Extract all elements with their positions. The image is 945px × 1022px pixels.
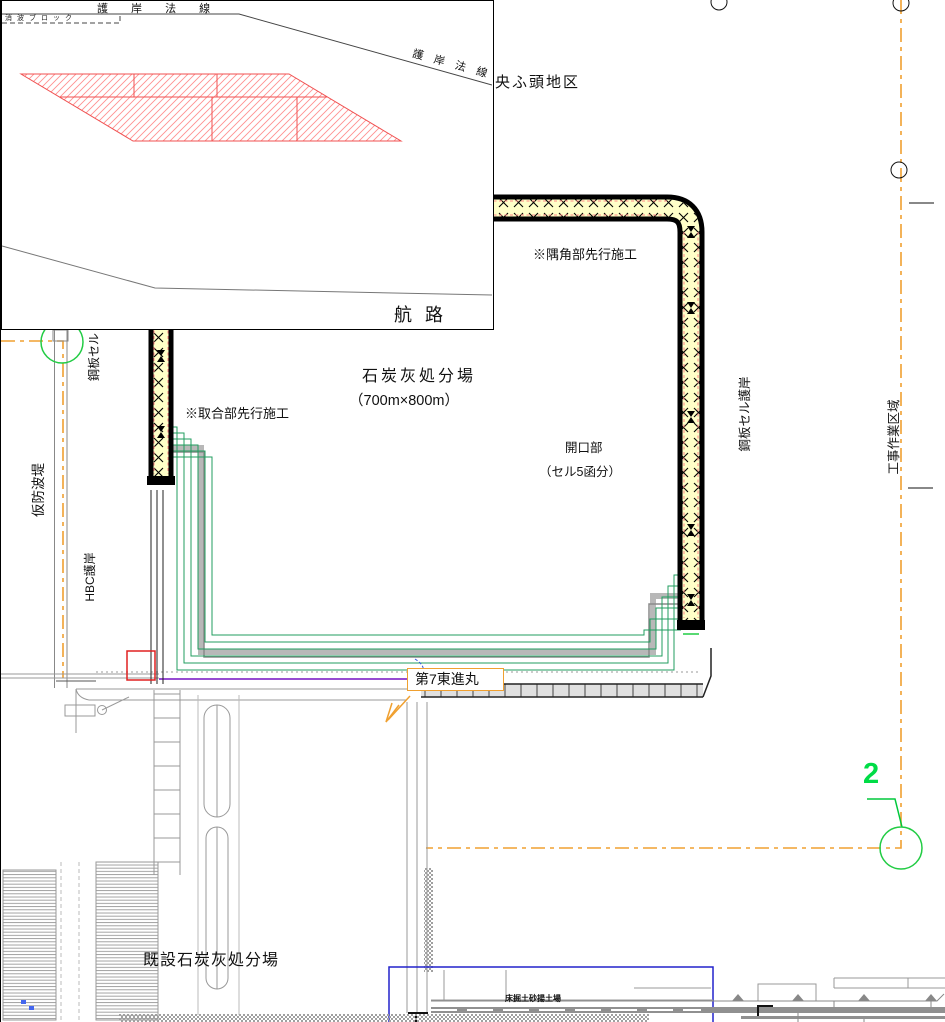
ship-name-label: 第7東進丸	[415, 671, 479, 687]
disposal-site-title: 石炭灰処分場	[362, 362, 476, 386]
steel-cell-quay-label: 鋼板セル護岸	[737, 376, 752, 451]
channel-label: 航 路	[394, 301, 447, 327]
opening-detail: （セル5函分）	[539, 461, 621, 480]
pier-district-label: 央ふ頭地区	[495, 71, 580, 92]
revetment-line-label-top: 護 岸 法 線	[97, 0, 220, 16]
dredged-soil-yard-label: 床掘土砂揚土場	[505, 993, 561, 1004]
joint-precede-note: ※取合部先行施工	[185, 403, 289, 422]
temporary-breakwater-lines	[1, 330, 159, 688]
work-area-label: 工事作業区域	[886, 399, 901, 474]
south-quay-lines	[76, 648, 711, 733]
access-road	[407, 659, 433, 1013]
opening-label: 開口部	[565, 437, 603, 456]
reclamation-hatched-area	[21, 74, 401, 141]
wave-block-label: 消波ブロック	[5, 13, 77, 23]
coast-line	[2, 246, 492, 295]
hbc-quay-label: HBC護岸	[82, 552, 97, 601]
stock-yards	[3, 862, 158, 1020]
ship-name-box: 第7東進丸	[407, 668, 504, 691]
wall-extension-lines	[151, 490, 163, 684]
inset-detail-panel: 護 岸 法 線 消波ブロック 護 岸 法 線 航 路	[1, 0, 494, 330]
site-plan-canvas: 鋼板セル 仮防波堤 HBC護岸 鋼板セル護岸 工事作業区域 央ふ頭地区 ※隅角部…	[0, 0, 945, 1022]
existing-disposal-site-label: 既設石炭灰処分場	[143, 946, 279, 970]
steel-cell-label: 鋼板セル	[87, 333, 101, 381]
corner-precede-note: ※隅角部先行施工	[533, 244, 637, 263]
section-marker-number: 2	[863, 758, 879, 791]
disposal-site-size: （700m×800m）	[349, 389, 459, 410]
temporary-breakwater-label: 仮防波堤	[31, 463, 46, 517]
